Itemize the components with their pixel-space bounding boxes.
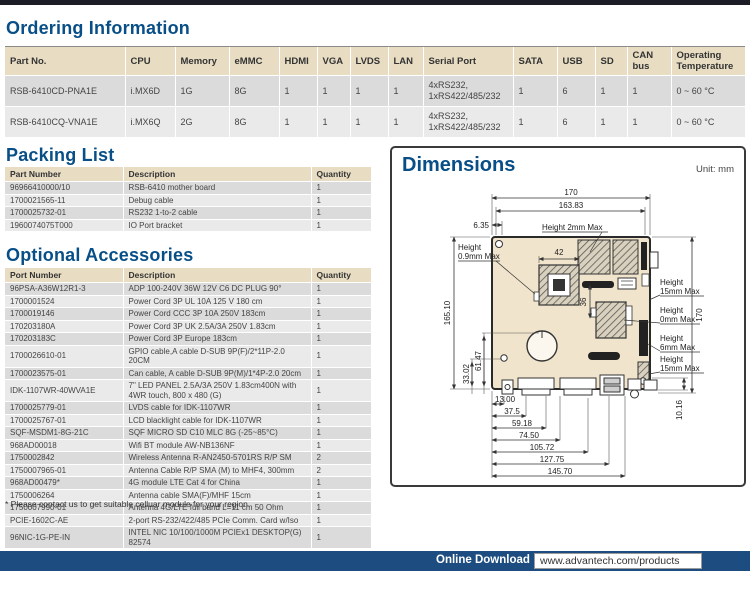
column-header: LVDS — [350, 47, 388, 76]
label-height-09mm-1: Height — [458, 243, 482, 252]
table-row: RSB-6410CD-PNA1Ei.MX6D1G8G11114xRS232, 1… — [5, 76, 745, 107]
table-cell: Power Cord 3P UK 2.5A/3A 250V 1.83cm — [123, 320, 311, 333]
table-cell: 1 — [311, 527, 371, 549]
column-header: Memory — [175, 47, 229, 76]
table-cell: INTEL NIC 10/100/1000M PCIEx1 DESKTOP(G)… — [123, 527, 311, 549]
table-cell: 1 — [513, 76, 557, 107]
table-cell: IDK-1107WR-40WVA1E — [5, 380, 123, 402]
table-cell: 1 — [311, 333, 371, 346]
table-cell: 8G — [229, 107, 279, 138]
table-cell: 1 — [595, 107, 627, 138]
table-cell: 1 — [311, 295, 371, 308]
label-height-2mm: Height 2mm Max — [542, 223, 602, 232]
table-row: IDK-1107WR-40WVA1E7" LED PANEL 2.5A/3A 2… — [5, 380, 371, 402]
table-cell: ADP 100-240V 36W 12V C6 DC PLUG 90° — [123, 283, 311, 296]
table-cell: 2G — [175, 107, 229, 138]
dimension-drawing-icon: 170 163.83 6.35 Height 2mm Max 165.10 33… — [392, 182, 744, 484]
table-cell: RSB-6410 mother board — [123, 182, 311, 195]
table-cell: RSB-6410CQ-VNA1E — [5, 107, 125, 138]
table-cell: 1 — [350, 76, 388, 107]
column-header: Serial Port — [423, 47, 513, 76]
header-row: Part No.CPUMemoryeMMCHDMIVGALVDSLANSeria… — [5, 47, 745, 76]
table-cell: i.MX6D — [125, 76, 175, 107]
table-row: 1750007965-01Antenna Cable R/P SMA (M) t… — [5, 464, 371, 477]
accessories-footnote: * Please contact us to get suitable cell… — [5, 499, 250, 509]
table-cell: Debug cable — [123, 194, 311, 207]
table-row: 170203183CPower Cord 3P Europe 183cm1 — [5, 333, 371, 346]
table-row: 1960074075T000IO Port bracket1 — [5, 219, 371, 232]
table-cell: 1 — [311, 414, 371, 427]
table-cell: 1 — [311, 194, 371, 207]
table-cell: 1 — [311, 477, 371, 490]
table-cell: IO Port bracket — [123, 219, 311, 232]
table-cell: 1 — [311, 283, 371, 296]
table-cell: PCIE-1602C-AE — [5, 514, 123, 527]
svg-text:13.00: 13.00 — [495, 395, 516, 404]
table-cell: 1 — [627, 107, 671, 138]
column-header: CPU — [125, 47, 175, 76]
table-row: 1700019146Power Cord CCC 3P 10A 250V 183… — [5, 308, 371, 321]
column-header: Port Number — [5, 268, 123, 283]
table-cell: 96PSA-A36W12R1-3 — [5, 283, 123, 296]
table-cell: 1 — [388, 107, 423, 138]
svg-text:0mm Max: 0mm Max — [660, 315, 695, 324]
column-header: Quantity — [311, 268, 371, 283]
dim-label-170-top: 170 — [564, 188, 578, 197]
table-row: 1700021565-11Debug cable1 — [5, 194, 371, 207]
svg-text:15mm Max: 15mm Max — [660, 287, 700, 296]
table-cell: 1 — [311, 308, 371, 321]
table-cell: RSB-6410CD-PNA1E — [5, 76, 125, 107]
table-cell: 6 — [557, 76, 595, 107]
footer-bar: Online Download www.advantech.com/produc… — [0, 551, 750, 571]
column-header: SD — [595, 47, 627, 76]
table-cell: 1 — [311, 427, 371, 440]
ordering-table: Part No.CPUMemoryeMMCHDMIVGALVDSLANSeria… — [5, 46, 745, 138]
dimensions-unit-label: Unit: mm — [696, 164, 734, 175]
table-row: 1700023575-01Can cable, A cable D-SUB 9P… — [5, 367, 371, 380]
dim-label-163-83: 163.83 — [559, 201, 584, 210]
table-row: 968AD00018Wifi BT module AW-NB136NF1 — [5, 439, 371, 452]
table-cell: 968AD00479* — [5, 477, 123, 490]
table-cell: 1 — [627, 76, 671, 107]
table-cell: 170203180A — [5, 320, 123, 333]
dim-label-33-02: 33.02 — [462, 363, 471, 384]
svg-text:145.70: 145.70 — [548, 467, 573, 476]
table-cell: i.MX6Q — [125, 107, 175, 138]
table-cell: 6 — [557, 107, 595, 138]
dim-label-61-47: 61.47 — [474, 350, 483, 371]
dim-label-170-right: 170 — [695, 308, 704, 322]
column-header: Description — [123, 167, 311, 182]
table-cell: 1 — [388, 76, 423, 107]
table-cell: RS232 1-to-2 cable — [123, 207, 311, 220]
table-cell: SQF-MSDM1-8G-21C — [5, 427, 123, 440]
table-cell: 1G — [175, 76, 229, 107]
column-header: Part No. — [5, 47, 125, 76]
table-row: 96966410000/10RSB-6410 mother board1 — [5, 182, 371, 195]
packing-section-title: Packing List — [6, 145, 114, 166]
table-cell: 1 — [350, 107, 388, 138]
svg-text:37.5: 37.5 — [504, 407, 520, 416]
table-cell: 1750002842 — [5, 452, 123, 465]
svg-text:Height: Height — [660, 306, 684, 315]
table-cell: 1700025767-01 — [5, 414, 123, 427]
table-cell: 96NIC-1G-PE-IN — [5, 527, 123, 549]
dim-label-36: 36 — [579, 297, 588, 306]
dimensions-section-title: Dimensions — [402, 154, 515, 177]
table-cell: 1 — [311, 439, 371, 452]
svg-text:105.72: 105.72 — [530, 443, 555, 452]
dim-label-165-10: 165.10 — [443, 300, 452, 325]
table-cell: LCD blacklight cable for IDK-1107WR — [123, 414, 311, 427]
svg-text:74.50: 74.50 — [519, 431, 540, 440]
table-cell: 1 — [317, 76, 350, 107]
table-row: 1750002842Wireless Antenna R-AN2450-5701… — [5, 452, 371, 465]
table-row: 1700001524Power Cord 3P UL 10A 125 V 180… — [5, 295, 371, 308]
table-cell: 1700026610-01 — [5, 345, 123, 367]
table-cell: 1750007965-01 — [5, 464, 123, 477]
table-cell: 1 — [311, 402, 371, 415]
svg-text:59.18: 59.18 — [512, 419, 533, 428]
table-row: 96PSA-A36W12R1-3ADP 100-240V 36W 12V C6 … — [5, 283, 371, 296]
svg-text:Height: Height — [660, 355, 684, 364]
table-row: PCIE-1602C-AE2-port RS-232/422/485 PCIe … — [5, 514, 371, 527]
label-height-09mm-2: 0.9mm Max — [458, 252, 500, 261]
table-row: 1700025767-01LCD blacklight cable for ID… — [5, 414, 371, 427]
table-cell: GPIO cable,A cable D-SUB 9P(F)/2*11P-2.0… — [123, 345, 311, 367]
dim-label-42: 42 — [555, 248, 564, 257]
footer-url-link[interactable]: www.advantech.com/products — [534, 553, 702, 569]
component-hatched-2 — [613, 240, 638, 274]
table-row: SQF-MSDM1-8G-21CSQF MICRO SD C10 MLC 8G … — [5, 427, 371, 440]
table-cell: 968AD00018 — [5, 439, 123, 452]
table-cell: 1700025732-01 — [5, 207, 123, 220]
svg-text:15mm Max: 15mm Max — [660, 364, 700, 373]
table-cell: 1 — [317, 107, 350, 138]
table-cell: 2-port RS-232/422/485 PCIe Comm. Card w/… — [123, 514, 311, 527]
table-cell: 4xRS232, 1xRS422/485/232 — [423, 107, 513, 138]
table-cell: 4xRS232, 1xRS422/485/232 — [423, 76, 513, 107]
table-cell: Power Cord 3P Europe 183cm — [123, 333, 311, 346]
table-cell: 1 — [311, 219, 371, 232]
table-cell: 1 — [311, 502, 371, 515]
accessories-section-title: Optional Accessories — [6, 245, 193, 266]
table-cell: 1960074075T000 — [5, 219, 123, 232]
table-cell: Wireless Antenna R-AN2450-5701RS R/P SM — [123, 452, 311, 465]
svg-text:6mm Max: 6mm Max — [660, 343, 695, 352]
column-header: Quantity — [311, 167, 371, 182]
svg-text:127.75: 127.75 — [540, 455, 565, 464]
column-header: USB — [557, 47, 595, 76]
table-cell: 1 — [279, 107, 317, 138]
table-cell: 1 — [513, 107, 557, 138]
table-cell: 0 ~ 60 °C — [671, 107, 745, 138]
table-cell: Antenna Cable R/P SMA (M) to MHF4, 300mm — [123, 464, 311, 477]
table-cell: 1 — [311, 320, 371, 333]
table-cell: 2 — [311, 452, 371, 465]
table-cell: 1 — [311, 489, 371, 502]
dim-label-10-16: 10.16 — [675, 399, 684, 420]
table-row: 1700025779-01LVDS cable for IDK-1107WR1 — [5, 402, 371, 415]
dimensions-panel: Dimensions Unit: mm — [390, 146, 746, 487]
dim-label-6-35: 6.35 — [473, 221, 489, 230]
table-row: 96NIC-1G-PE-ININTEL NIC 10/100/1000M PCI… — [5, 527, 371, 549]
page-top-rule — [0, 0, 750, 5]
packing-table: Part NumberDescriptionQuantity9696641000… — [5, 167, 371, 232]
table-cell: Can cable, A cable D-SUB 9P(M)/1*4P-2.0 … — [123, 367, 311, 380]
table-cell: 1 — [311, 514, 371, 527]
column-header: HDMI — [279, 47, 317, 76]
table-cell: 7" LED PANEL 2.5A/3A 250V 1.83cm400N wit… — [123, 380, 311, 402]
table-cell: 1 — [311, 380, 371, 402]
table-row: 170203180APower Cord 3P UK 2.5A/3A 250V … — [5, 320, 371, 333]
online-download-label: Online Download — [436, 554, 530, 566]
column-header: eMMC — [229, 47, 279, 76]
table-cell: 96966410000/10 — [5, 182, 123, 195]
table-cell: 1 — [595, 76, 627, 107]
table-cell: 1700021565-11 — [5, 194, 123, 207]
table-cell: 8G — [229, 76, 279, 107]
table-row: RSB-6410CQ-VNA1Ei.MX6Q2G8G11114xRS232, 1… — [5, 107, 745, 138]
table-cell: 1700019146 — [5, 308, 123, 321]
column-header: Part Number — [5, 167, 123, 182]
column-header: Operating Temperature — [671, 47, 745, 76]
table-cell: Power Cord 3P UL 10A 125 V 180 cm — [123, 295, 311, 308]
table-row: 968AD00479*4G module LTE Cat 4 for China… — [5, 477, 371, 490]
column-header: LAN — [388, 47, 423, 76]
table-cell: 1 — [311, 207, 371, 220]
header-row: Part NumberDescriptionQuantity — [5, 167, 371, 182]
column-header: SATA — [513, 47, 557, 76]
column-header: VGA — [317, 47, 350, 76]
table-cell: 0 ~ 60 °C — [671, 76, 745, 107]
table-cell: Wifi BT module AW-NB136NF — [123, 439, 311, 452]
table-row: 1700025732-01RS232 1-to-2 cable1 — [5, 207, 371, 220]
table-cell: 1700025779-01 — [5, 402, 123, 415]
table-cell: 4G module LTE Cat 4 for China — [123, 477, 311, 490]
ordering-section-title: Ordering Information — [6, 18, 190, 39]
cpu-component — [534, 265, 579, 305]
table-cell: LVDS cable for IDK-1107WR — [123, 402, 311, 415]
svg-text:Height: Height — [660, 334, 684, 343]
datasheet-page: { "colors": { "accent_blue": "#084f87", … — [0, 0, 750, 591]
table-cell: 1 — [311, 367, 371, 380]
table-cell: 1700023575-01 — [5, 367, 123, 380]
table-cell: Power Cord CCC 3P 10A 250V 183cm — [123, 308, 311, 321]
column-header: Description — [123, 268, 311, 283]
table-cell: SQF MICRO SD C10 MLC 8G (-25~85°C) — [123, 427, 311, 440]
svg-text:Height: Height — [660, 278, 684, 287]
table-cell: 1700001524 — [5, 295, 123, 308]
table-cell: 1 — [311, 345, 371, 367]
header-row: Port NumberDescriptionQuantity — [5, 268, 371, 283]
table-cell: 1 — [311, 182, 371, 195]
table-row: 1700026610-01GPIO cable,A cable D-SUB 9P… — [5, 345, 371, 367]
table-cell: 170203183C — [5, 333, 123, 346]
table-cell: 1 — [279, 76, 317, 107]
table-cell: 2 — [311, 464, 371, 477]
column-header: CAN bus — [627, 47, 671, 76]
